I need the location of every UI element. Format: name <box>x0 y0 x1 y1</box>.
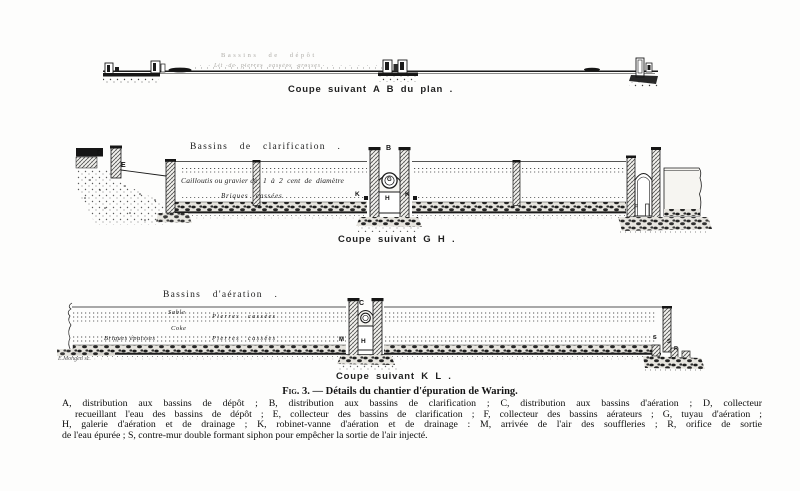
gh-label-d: D <box>97 150 102 157</box>
kl-title: Bassins d'aération . <box>163 291 278 301</box>
coupe-gh-drawing <box>70 128 735 236</box>
gh-label-k-left: K <box>355 192 360 199</box>
gh-label-b: B <box>386 145 391 152</box>
gh-gravel-label-right: 1 à 2 cent de diamètre <box>263 177 344 185</box>
scanned-figure-page: Bassins de dépôt Lit de pierres cassées … <box>0 0 800 491</box>
gh-label-k-right: K <box>405 192 410 199</box>
figure-title: — Détails du chantier d'épuration de War… <box>310 386 518 397</box>
kl-label-m: M <box>339 337 344 343</box>
kl-layer-pierres-top: Pierres cassées <box>212 314 277 321</box>
gh-gravel-label-left: Cailloutis ou gravier de <box>181 177 258 185</box>
ab-ghost-title: Bassins de dépôt <box>221 53 317 60</box>
left-collector-structure <box>76 146 166 226</box>
kl-label-s-right: S <box>667 340 671 346</box>
legend-line-4: de l'eau épurée ; S, contre-mur double f… <box>62 431 762 442</box>
ab-ghost-subtitle: Lit de pierres cassées grosses <box>214 63 321 69</box>
ab-caption: Coupe suivant A B du plan . <box>288 85 453 95</box>
engraver-signature: E.Mongen sc. <box>58 356 91 362</box>
kl-label-c: C <box>359 300 364 307</box>
kl-label-r: R <box>674 347 678 353</box>
gh-caption: Coupe suivant G H . <box>338 235 455 245</box>
legend-line-1: A, distribution aux bassins de dépôt ; B… <box>62 399 762 410</box>
gh-label-e: E <box>121 162 126 169</box>
figure-caption: Fig. 3. — Détails du chantier d'épuratio… <box>0 386 800 397</box>
kl-layer-pierres-bottom: Pierres cassées <box>212 336 277 343</box>
kl-caption: Coupe suivant K L . <box>336 372 452 382</box>
kl-layer-coke: Coke <box>171 326 186 333</box>
coupe-kl-drawing <box>55 293 720 375</box>
right-collector-well <box>618 147 712 232</box>
central-distribution-tower <box>356 147 422 232</box>
section-line-ab <box>103 58 659 87</box>
gh-label-g: G <box>387 177 392 183</box>
gh-label-f: F <box>634 205 638 212</box>
figure-legend: A, distribution aux bassins de dépôt ; B… <box>62 399 762 441</box>
kl-label-h: H <box>361 339 366 346</box>
gh-label-h: H <box>385 196 390 203</box>
gh-floor-label: Briques cassées <box>221 193 283 200</box>
kl-label-s-left: S <box>653 336 657 342</box>
kl-layer-briques: Briques épaisses <box>104 336 156 343</box>
kl-layer-sable: Sable <box>168 310 185 317</box>
figure-number: Fig. 3. <box>282 386 310 397</box>
gh-title: Bassins de clarification . <box>190 143 341 153</box>
